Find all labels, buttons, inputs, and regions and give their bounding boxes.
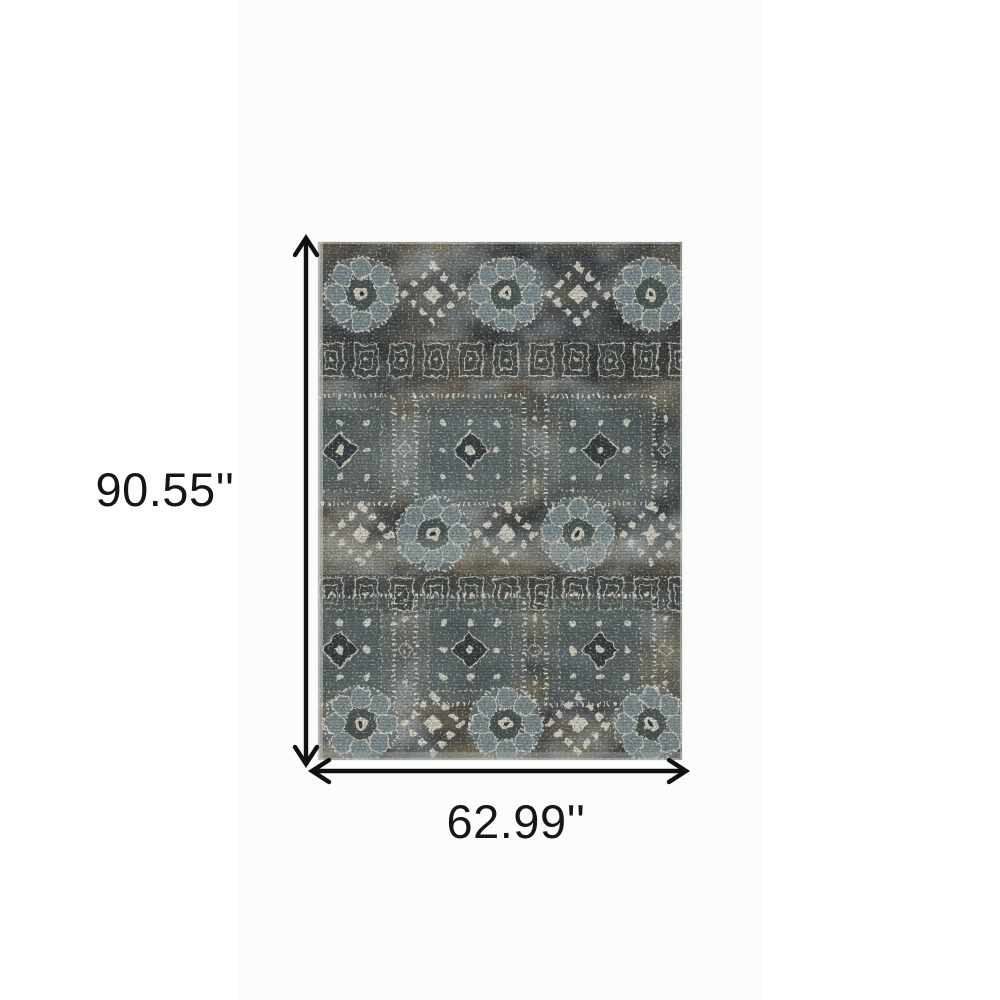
- height-arrow-strokes: [295, 238, 317, 764]
- height-dimension-label: 90.55'': [59, 465, 271, 515]
- height-dimension-arrow: [290, 230, 322, 774]
- width-arrow-strokes: [312, 760, 686, 782]
- rug-photo: [318, 242, 682, 760]
- rug-art: [318, 242, 682, 760]
- product-dimension-image: 90.55'' 62.99'': [0, 0, 1000, 1000]
- width-dimension-arrow: [302, 755, 696, 787]
- width-dimension-label: 62.99'': [410, 797, 622, 847]
